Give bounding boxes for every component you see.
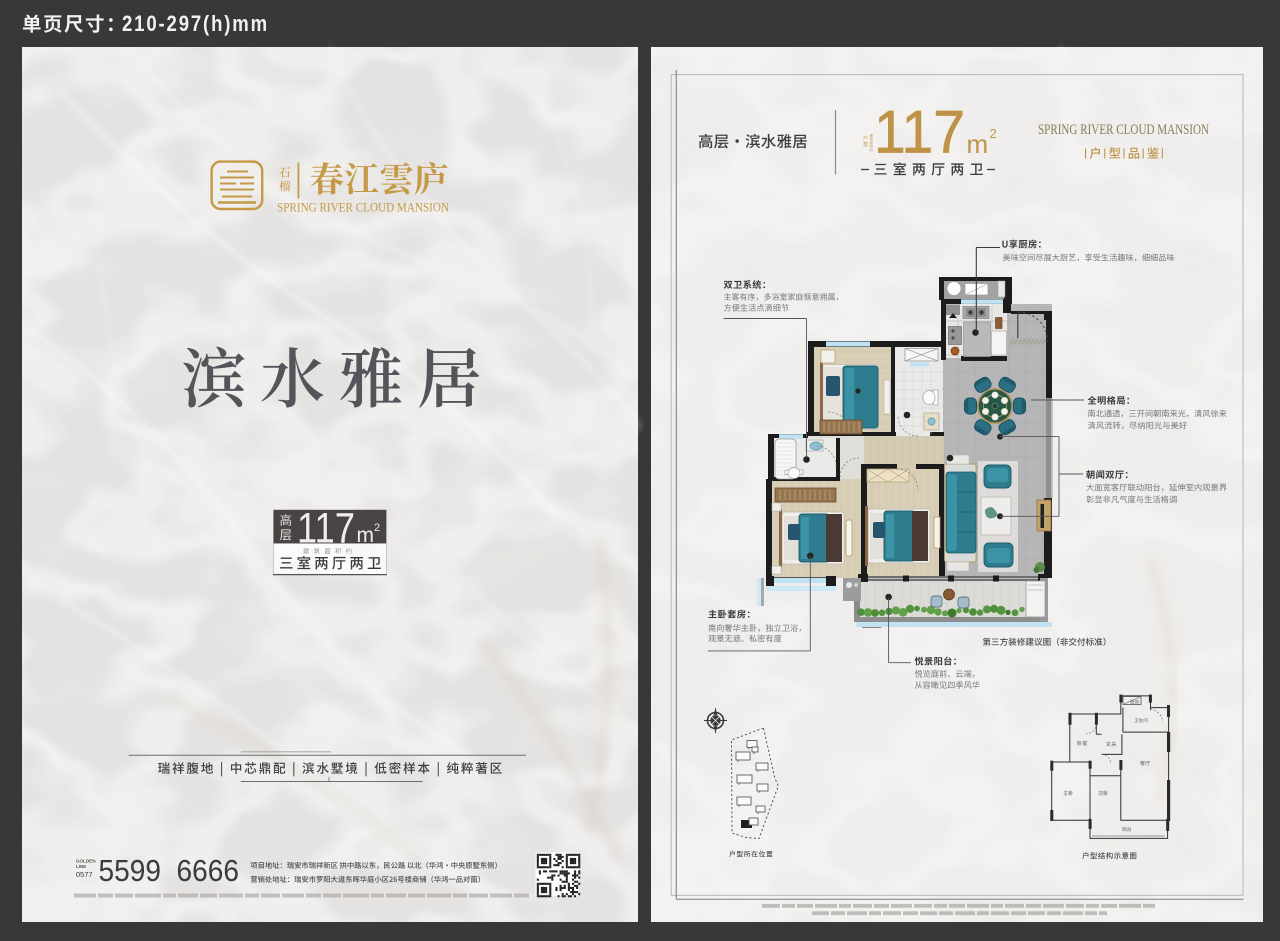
- svg-text:2: 2: [990, 126, 997, 141]
- svg-text:5599 6666: 5599 6666: [99, 853, 240, 888]
- svg-text:210-297(h)mm: 210-297(h)mm: [122, 11, 269, 36]
- svg-text:117: 117: [874, 99, 965, 166]
- svg-text:m: m: [967, 129, 989, 159]
- svg-text:GOLDEN: GOLDEN: [76, 859, 96, 864]
- svg-text:SPRING RIVER CLOUD MANSION: SPRING RIVER CLOUD MANSION: [277, 200, 450, 215]
- svg-text:SPRING RIVER CLOUD MANSION: SPRING RIVER CLOUD MANSION: [1038, 122, 1209, 138]
- svg-text:2: 2: [374, 522, 380, 534]
- svg-text:0577: 0577: [76, 870, 93, 879]
- svg-text:LINE: LINE: [76, 864, 86, 869]
